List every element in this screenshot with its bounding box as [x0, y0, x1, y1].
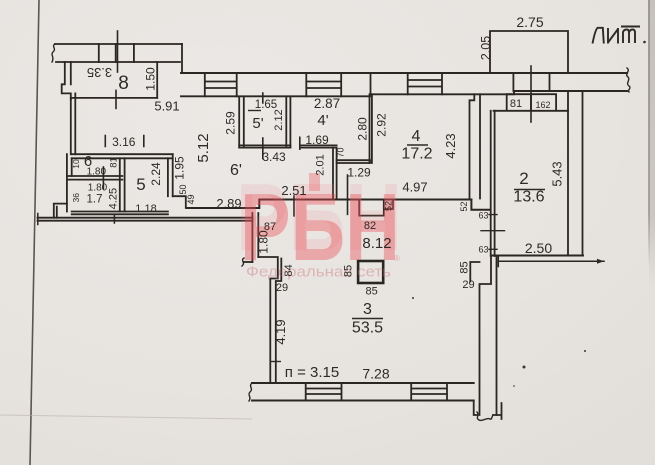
- svg-text:5.91: 5.91: [154, 99, 179, 114]
- svg-text:2.51: 2.51: [281, 183, 306, 198]
- svg-text:10: 10: [71, 159, 81, 169]
- svg-text:7.28: 7.28: [362, 366, 389, 382]
- svg-text:1.50: 1.50: [144, 67, 158, 91]
- svg-text:2.59: 2.59: [224, 111, 238, 135]
- svg-text:2.05: 2.05: [479, 36, 493, 60]
- svg-text:®: ®: [394, 254, 400, 263]
- svg-text:2.80: 2.80: [355, 117, 369, 141]
- svg-text:5': 5': [252, 115, 263, 132]
- svg-text:2.50: 2.50: [525, 240, 552, 256]
- svg-text:8.12: 8.12: [362, 235, 391, 252]
- svg-text:162: 162: [535, 100, 550, 110]
- svg-text:2.01: 2.01: [315, 154, 327, 175]
- svg-text:82: 82: [364, 220, 376, 232]
- svg-text:8: 8: [118, 73, 129, 94]
- svg-text:1.80: 1.80: [257, 230, 271, 254]
- svg-text:4: 4: [412, 128, 421, 145]
- svg-text:2.12: 2.12: [273, 109, 285, 130]
- svg-text:4.19: 4.19: [273, 319, 288, 344]
- svg-text:53.5: 53.5: [352, 320, 383, 337]
- svg-text:52: 52: [384, 201, 394, 211]
- svg-text:5.12: 5.12: [195, 133, 212, 162]
- svg-text:3.35: 3.35: [87, 65, 112, 80]
- svg-text:2.75: 2.75: [516, 14, 543, 30]
- svg-text:81: 81: [108, 157, 119, 168]
- svg-text:4.25: 4.25: [107, 188, 119, 209]
- svg-text:5.43: 5.43: [550, 161, 565, 186]
- svg-text:4.97: 4.97: [402, 180, 427, 195]
- svg-text:85: 85: [459, 261, 471, 273]
- svg-text:49: 49: [186, 194, 196, 204]
- svg-text:29: 29: [462, 279, 474, 291]
- svg-text:85: 85: [365, 286, 377, 298]
- svg-text:п = 3.15: п = 3.15: [285, 364, 339, 381]
- svg-text:4': 4': [317, 112, 328, 129]
- svg-text:2.87: 2.87: [314, 96, 340, 111]
- svg-text:1.18: 1.18: [135, 203, 156, 215]
- svg-text:2.24: 2.24: [149, 162, 163, 186]
- svg-text:85: 85: [342, 265, 354, 277]
- svg-text:50: 50: [178, 184, 188, 194]
- svg-text:1.69: 1.69: [305, 133, 329, 147]
- svg-text:84: 84: [283, 264, 295, 276]
- svg-text:70: 70: [335, 147, 345, 157]
- svg-text:2: 2: [519, 169, 528, 188]
- svg-text:13.6: 13.6: [513, 189, 544, 206]
- svg-text:81: 81: [510, 98, 522, 110]
- svg-text:63: 63: [478, 211, 488, 221]
- svg-text:36: 36: [71, 193, 81, 203]
- svg-text:3.43: 3.43: [262, 150, 286, 164]
- svg-text:2.89: 2.89: [216, 196, 241, 211]
- svg-text:52: 52: [459, 201, 469, 211]
- svg-text:Федеральная сеть: Федеральная сеть: [246, 264, 391, 281]
- svg-text:3.16: 3.16: [112, 135, 136, 149]
- svg-text:3: 3: [363, 301, 372, 318]
- svg-text:1.80: 1.80: [88, 183, 108, 194]
- svg-text:2.92: 2.92: [375, 113, 389, 137]
- svg-text:1.7: 1.7: [87, 194, 103, 206]
- svg-text:4.23: 4.23: [443, 133, 458, 158]
- svg-text:1.65: 1.65: [255, 99, 277, 111]
- svg-text:63: 63: [478, 245, 488, 255]
- svg-text:5: 5: [136, 175, 145, 194]
- svg-text:1.29: 1.29: [347, 166, 371, 180]
- svg-text:1.80: 1.80: [87, 167, 107, 178]
- svg-text:29: 29: [276, 282, 288, 294]
- svg-text:1.95: 1.95: [172, 156, 186, 180]
- svg-text:17.2: 17.2: [401, 146, 432, 163]
- svg-text:6': 6': [230, 162, 242, 179]
